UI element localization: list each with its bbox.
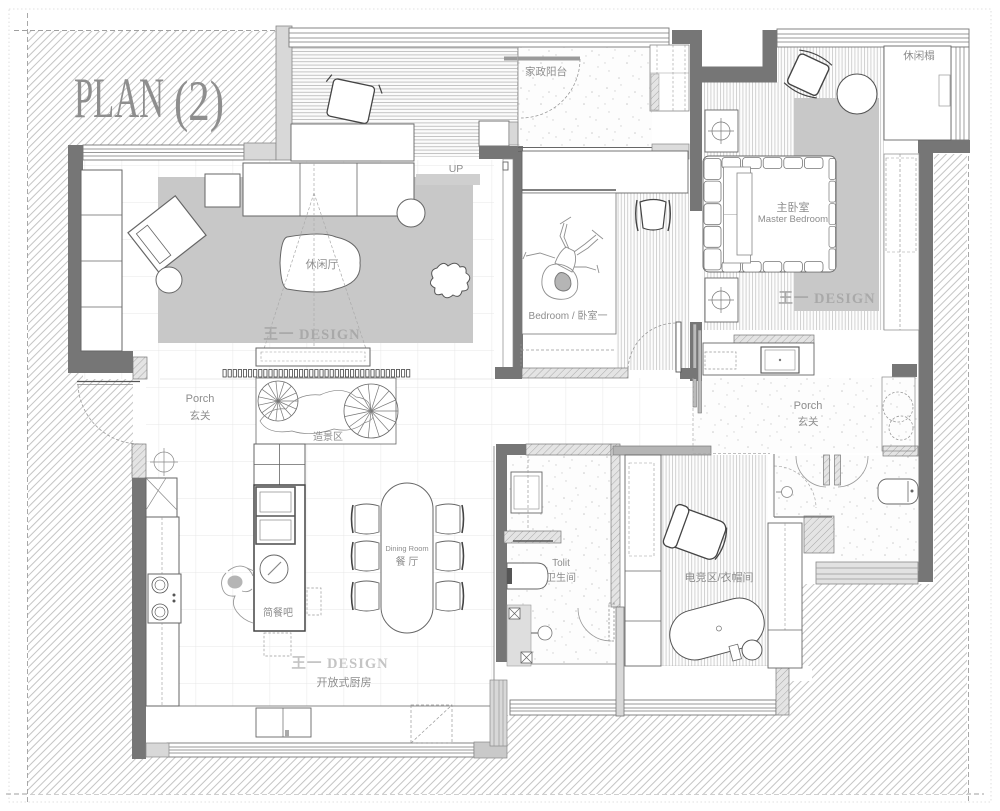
svg-text:Bedroom / 卧室一: Bedroom / 卧室一 xyxy=(529,309,608,322)
svg-text:休闲榻: 休闲榻 xyxy=(903,49,935,62)
svg-text:(2): (2) xyxy=(174,70,224,133)
svg-text:Porch: Porch xyxy=(186,393,215,405)
svg-text:卫生间: 卫生间 xyxy=(546,571,576,584)
svg-text:开放式厨房: 开放式厨房 xyxy=(317,675,372,689)
svg-text:UP: UP xyxy=(449,163,464,175)
svg-text:王一 DESIGN: 王一 DESIGN xyxy=(291,655,388,672)
svg-text:Tolit: Tolit xyxy=(552,558,570,569)
svg-text:休闲厅: 休闲厅 xyxy=(306,257,339,271)
svg-text:餐 厅: 餐 厅 xyxy=(396,555,419,568)
svg-text:电竞区/衣帽间: 电竞区/衣帽间 xyxy=(684,570,753,584)
svg-text:王一 DESIGN: 王一 DESIGN xyxy=(263,326,360,343)
svg-text:玄关: 玄关 xyxy=(798,415,819,428)
svg-text:家政阳台: 家政阳台 xyxy=(525,65,567,78)
svg-text:王一 DESIGN: 王一 DESIGN xyxy=(778,290,875,307)
svg-text:主卧室: 主卧室 xyxy=(777,200,810,214)
svg-text:造景区: 造景区 xyxy=(313,430,343,443)
svg-text:PLAN: PLAN xyxy=(74,67,164,130)
svg-text:Porch: Porch xyxy=(794,400,823,412)
svg-text:Master Bedroom: Master Bedroom xyxy=(758,214,828,225)
svg-text:Dining Room: Dining Room xyxy=(385,544,428,553)
svg-text:玄关: 玄关 xyxy=(190,409,211,422)
svg-text:简餐吧: 简餐吧 xyxy=(263,606,293,619)
